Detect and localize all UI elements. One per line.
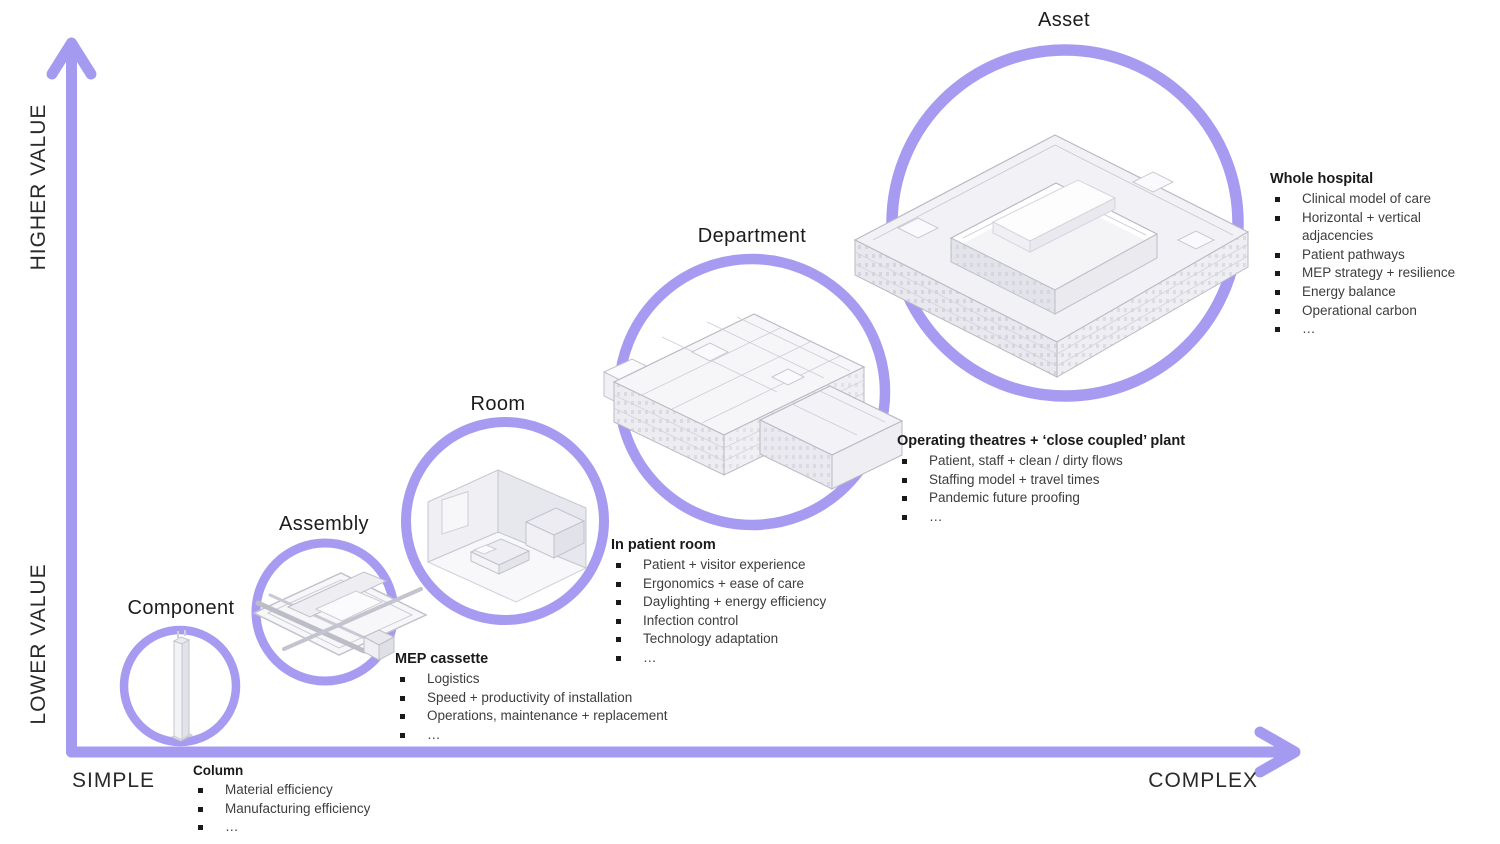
list-item-text: MEP strategy + resilience: [1302, 264, 1455, 283]
component-list: Column Material efficiency Manufacturing…: [193, 763, 443, 837]
stage-title-assembly: Assembly: [279, 513, 369, 536]
value-complexity-diagram: Component Assembly Room Department Asset…: [0, 0, 1500, 844]
list-item: …: [193, 818, 443, 837]
list-item: Operations, maintenance + replacement: [395, 707, 735, 726]
x-axis-label-simple: SIMPLE: [72, 769, 155, 793]
list-item: Clinical model of care: [1270, 190, 1488, 209]
list-item-text: Logistics: [427, 670, 480, 689]
list-item-text: Operational carbon: [1302, 302, 1417, 321]
list-item-text: Energy balance: [1302, 283, 1396, 302]
list-item: …: [1270, 320, 1488, 339]
x-axis-label-complex: COMPLEX: [1148, 769, 1258, 793]
list-item-text: Clinical model of care: [1302, 190, 1431, 209]
bullet-icon: [616, 637, 621, 642]
bullet-icon: [1275, 216, 1280, 221]
list-item-text: Horizontal + vertical adjacencies: [1302, 209, 1488, 246]
list-item-text: Daylighting + energy efficiency: [643, 593, 826, 612]
bullet-icon: [198, 825, 203, 830]
room-list: In patient room Patient + visitor experi…: [611, 537, 901, 668]
bullet-icon: [902, 515, 907, 520]
list-item: Speed + productivity of installation: [395, 689, 735, 708]
bullet-icon: [616, 619, 621, 624]
patient-room-illustration: [416, 444, 601, 606]
hospital-asset-illustration: [843, 90, 1263, 380]
bullet-icon: [400, 714, 405, 719]
bullet-icon: [1275, 327, 1280, 332]
stage-title-room: Room: [471, 393, 526, 416]
bullet-icon: [616, 600, 621, 605]
bullet-icon: [1275, 271, 1280, 276]
list-item: Manufacturing efficiency: [193, 800, 443, 819]
list-item: Horizontal + vertical adjacencies: [1270, 209, 1488, 246]
stage-title-asset: Asset: [1038, 9, 1090, 32]
bullet-icon: [198, 807, 203, 812]
bullet-icon: [616, 563, 621, 568]
bullet-icon: [902, 496, 907, 501]
stage-title-component: Component: [128, 597, 235, 620]
list-item: Operational carbon: [1270, 302, 1488, 321]
list-item-text: Material efficiency: [225, 781, 333, 800]
list-item-text: Patient + visitor experience: [643, 556, 805, 575]
list-item-text: …: [929, 508, 943, 527]
list-item: Infection control: [611, 612, 901, 631]
bullet-icon: [400, 696, 405, 701]
list-item-text: Speed + productivity of installation: [427, 689, 632, 708]
list-item: …: [395, 726, 735, 745]
list-title: Column: [193, 763, 443, 778]
list-item: Material efficiency: [193, 781, 443, 800]
list-item-text: …: [643, 649, 657, 668]
list-item: Ergonomics + ease of care: [611, 575, 901, 594]
bullet-icon: [1275, 290, 1280, 295]
list-item-text: …: [225, 818, 239, 837]
list-item: Patient + visitor experience: [611, 556, 901, 575]
list-item: Pandemic future proofing: [897, 489, 1247, 508]
list-item-text: …: [427, 726, 441, 745]
list-item-text: Operations, maintenance + replacement: [427, 707, 668, 726]
list-item-text: Patient, staff + clean / dirty flows: [929, 452, 1123, 471]
department-list: Operating theatres + ‘close coupled’ pla…: [897, 433, 1247, 526]
list-item-text: Pandemic future proofing: [929, 489, 1080, 508]
list-title: In patient room: [611, 537, 901, 553]
list-item: Daylighting + energy efficiency: [611, 593, 901, 612]
asset-list: Whole hospital Clinical model of care Ho…: [1270, 171, 1488, 339]
bullet-icon: [902, 478, 907, 483]
list-item-text: Patient pathways: [1302, 246, 1405, 265]
stage-title-department: Department: [698, 225, 807, 248]
bullet-icon: [400, 677, 405, 682]
bullet-icon: [198, 788, 203, 793]
column-illustration: [152, 628, 210, 750]
bullet-icon: [1275, 253, 1280, 258]
list-item-text: Manufacturing efficiency: [225, 800, 370, 819]
list-item: MEP strategy + resilience: [1270, 264, 1488, 283]
list-item-text: Ergonomics + ease of care: [643, 575, 804, 594]
list-title: Operating theatres + ‘close coupled’ pla…: [897, 433, 1247, 449]
y-axis-label-lower-value: LOWER VALUE: [27, 563, 51, 724]
list-item-text: Technology adaptation: [643, 630, 778, 649]
list-item: Energy balance: [1270, 283, 1488, 302]
list-item-text: …: [1302, 320, 1316, 339]
list-item: Staffing model + travel times: [897, 471, 1247, 490]
bullet-icon: [616, 582, 621, 587]
list-item-text: Staffing model + travel times: [929, 471, 1099, 490]
list-item: Logistics: [395, 670, 735, 689]
list-title: Whole hospital: [1270, 171, 1488, 187]
list-item: Patient pathways: [1270, 246, 1488, 265]
bullet-icon: [1275, 197, 1280, 202]
list-item-text: Infection control: [643, 612, 738, 631]
list-item: …: [611, 649, 901, 668]
bullet-icon: [1275, 309, 1280, 314]
bullet-icon: [400, 733, 405, 738]
list-item: Patient, staff + clean / dirty flows: [897, 452, 1247, 471]
bullet-icon: [616, 656, 621, 661]
list-item: …: [897, 508, 1247, 527]
list-item: Technology adaptation: [611, 630, 901, 649]
y-axis-label-higher-value: HIGHER VALUE: [27, 104, 51, 271]
bullet-icon: [902, 459, 907, 464]
